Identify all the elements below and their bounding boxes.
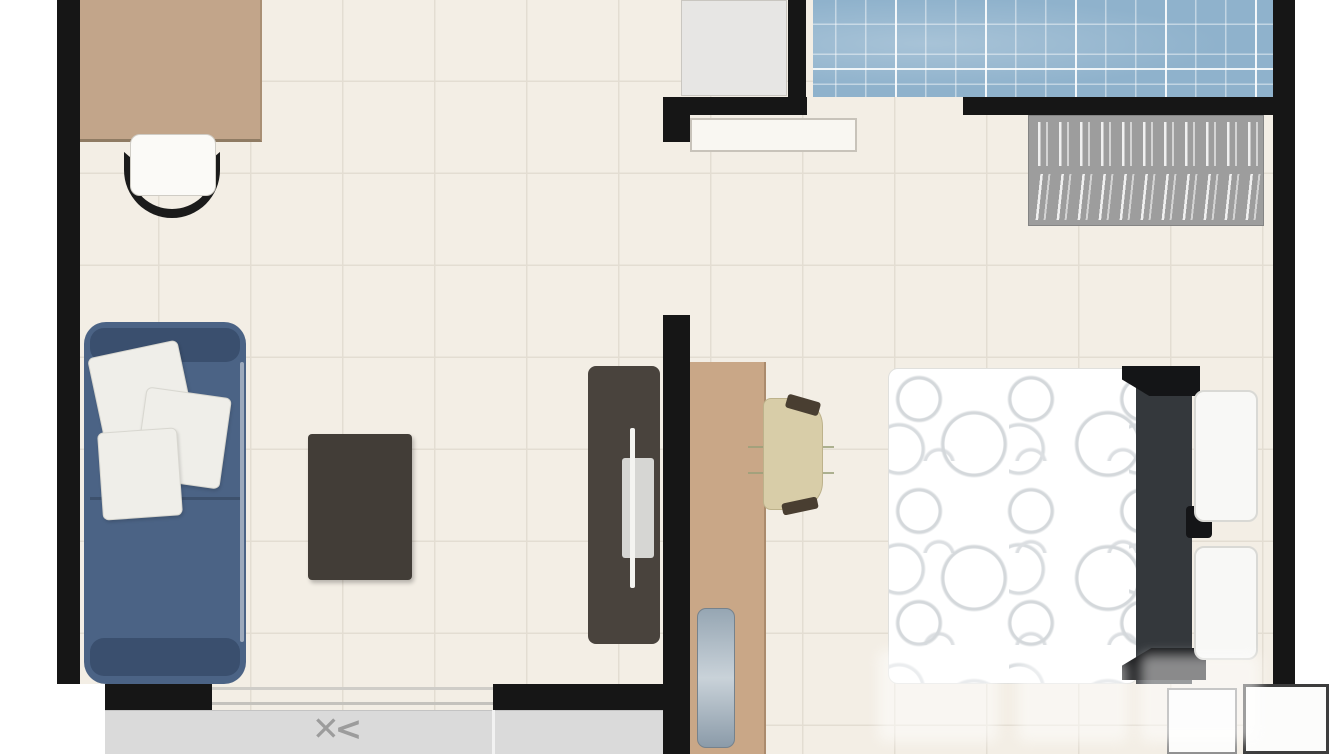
tv-highlight xyxy=(630,428,635,588)
kitchen-counter xyxy=(78,0,262,142)
utility-box xyxy=(681,0,787,96)
wall-bathroom-bottom xyxy=(963,97,1273,115)
coffee-table xyxy=(308,434,412,580)
open-door-leaf xyxy=(690,118,857,152)
sliding-door-track xyxy=(212,687,493,690)
bed-pillow xyxy=(1194,390,1258,522)
sliding-door-track xyxy=(212,702,493,705)
wall-bottom-left xyxy=(105,684,212,710)
floor-plan: ✕< xyxy=(0,0,1342,754)
throw-pillow xyxy=(97,427,183,520)
sofa-edge-highlight xyxy=(240,362,244,642)
wall-bottom-center xyxy=(493,684,665,710)
nightstand xyxy=(1167,688,1237,754)
wardrobe-hanging-clothes-row xyxy=(1033,122,1259,166)
wall-entry-side xyxy=(788,0,806,103)
double-bed xyxy=(888,368,1138,684)
desk-device xyxy=(697,608,735,748)
wardrobe xyxy=(1028,115,1264,226)
headboard xyxy=(1136,368,1192,684)
wardrobe-hanging-clothes-row xyxy=(1031,174,1262,220)
balcony-divider-line xyxy=(492,710,495,754)
nightstand xyxy=(1243,684,1329,754)
bathroom-tiled-floor xyxy=(813,0,1273,97)
exterior-corner xyxy=(0,684,105,754)
tv-screen xyxy=(622,458,654,558)
dining-chair-seat xyxy=(130,134,216,196)
wall-left xyxy=(57,0,80,684)
wall-entry-top xyxy=(663,97,807,115)
sliding-door-symbol: ✕< xyxy=(312,706,392,752)
wall-bedroom-partition xyxy=(663,315,690,754)
bed-pillow xyxy=(1194,546,1258,660)
wall-right xyxy=(1273,0,1295,684)
sofa-armrest xyxy=(90,638,240,676)
